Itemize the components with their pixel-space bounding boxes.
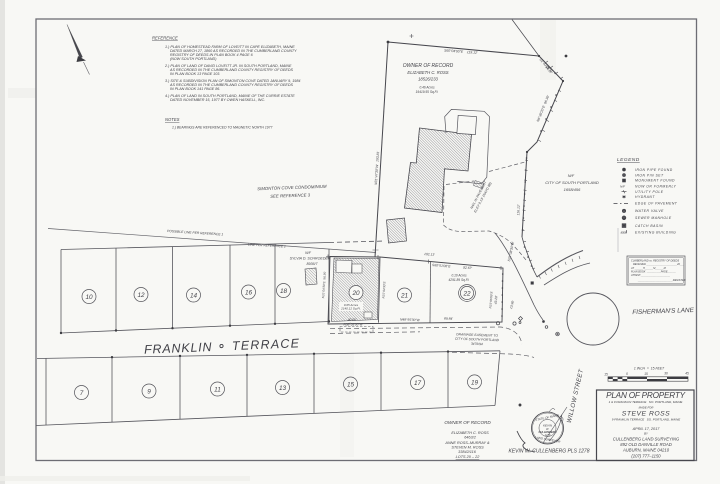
svg-text:MONUMENT FOUND: MONUMENT FOUND [635,179,675,183]
svg-text:RECEIVED _____________________: RECEIVED ______________________20___ [633,263,685,266]
svg-text:ATTEST:_____________________: ATTEST:_____________________ [630,274,671,277]
svg-text:APRIL 17, 2017: APRIL 17, 2017 [632,427,661,431]
svg-text:18: 18 [280,288,288,295]
svg-text:16: 16 [245,290,253,297]
svg-text:19: 19 [471,379,479,386]
svg-text:LEGEND: LEGEND [617,157,640,163]
svg-text:21: 21 [400,293,409,300]
svg-text:1 INCH = 15 FEET: 1 INCH = 15 FEET [634,367,665,371]
svg-text:MADE FOR: MADE FOR [639,406,654,410]
svg-text:22: 22 [462,291,471,298]
svg-text:18526/233: 18526/233 [418,77,438,82]
svg-text:0: 0 [626,372,628,376]
svg-text:EXISTING BUILDING: EXISTING BUILDING [635,231,676,235]
svg-text:17: 17 [414,380,422,387]
svg-text:1.) BEARINGS ARE REFERENCED TO: 1.) BEARINGS ARE REFERENCED TO MAGNETIC … [172,126,272,130]
svg-text:15: 15 [644,372,648,376]
svg-text:NOTES: NOTES [165,117,180,122]
svg-text:SEWER MANHOLE: SEWER MANHOLE [635,216,672,220]
svg-text:11: 11 [214,387,221,394]
svg-text:14: 14 [190,293,198,300]
svg-text:CATCH BASIN: CATCH BASIN [635,224,663,228]
svg-text:92.67': 92.67' [463,266,473,271]
svg-text:CITY OF SOUTH PORTLAND: CITY OF SOUTH PORTLAND [545,180,599,185]
svg-text:13: 13 [279,385,287,392]
svg-text:_________________________REGIS: _________________________REGISTER [637,279,686,282]
svg-text:HYDRANT: HYDRANT [635,195,655,199]
svg-text:AT ______H______M______M: AT ______H______M______M [630,267,667,270]
svg-text:ELIZABETH C. ROSS: ELIZABETH C. ROSS [451,431,489,435]
svg-text:19419.55 Sq.Ft.: 19419.55 Sq.Ft. [416,90,439,94]
svg-text:2140.12 Sq.Ft.: 2140.12 Sq.Ft. [340,307,361,311]
svg-text:33842/116: 33842/116 [458,450,477,454]
svg-text:DATED NOVEMBER 15, 1977 BY OWE: DATED NOVEMBER 15, 1977 BY OWEN HASKELL,… [170,98,265,102]
svg-text:ANNE ROSS–MURRAY &: ANNE ROSS–MURRAY & [444,441,490,445]
svg-text:30: 30 [664,372,668,376]
svg-text:AUBURN, MAINE 04210: AUBURN, MAINE 04210 [622,448,670,453]
svg-text:N/F: N/F [305,251,312,255]
svg-text:N58°55'30"W: N58°55'30"W [344,323,364,327]
svg-text:N/F: N/F [568,173,575,178]
svg-text:UTILITY POLE: UTILITY POLE [635,190,664,194]
svg-text:IRON PIN SET: IRON PIN SET [635,173,664,177]
svg-text:4291.89 Sq.Ft.: 4291.89 Sq.Ft. [449,278,470,282]
svg-text:12: 12 [137,292,145,299]
svg-text:TERRACE: TERRACE [232,336,301,353]
svg-text:10: 10 [85,294,93,301]
svg-text:(NOW SOUTH PORTLAND): (NOW SOUTH PORTLAND) [170,57,217,61]
svg-text:EDGE OF PAVEMENT: EDGE OF PAVEMENT [635,202,678,206]
svg-text:(207) 777–1150: (207) 777–1150 [631,454,661,459]
svg-text:15: 15 [604,372,608,376]
svg-text:40.00': 40.00' [348,318,357,322]
svg-text:6463/2: 6463/2 [464,436,477,440]
svg-text:ELIZABETH C. ROSS: ELIZABETH C. ROSS [407,70,448,75]
svg-text:9: 9 [147,389,151,396]
svg-text:KEVIN: KEVIN [543,424,553,428]
svg-text:3476/94: 3476/94 [471,342,483,346]
svg-text:8936/7: 8936/7 [307,262,319,266]
svg-text:OWNER OF RECORD: OWNER OF RECORD [444,420,491,425]
svg-text:KEVIN W. CULLENBERG PLS 1278: KEVIN W. CULLENBERG PLS 1278 [509,449,590,455]
svg-text:REFERENCE: REFERENCE [152,36,178,41]
svg-text:OWNER OF RECORD: OWNER OF RECORD [403,63,454,69]
svg-text:45: 45 [685,372,689,376]
svg-text:PLAN OF PROPERTY: PLAN OF PROPERTY [606,391,686,400]
svg-text:NOW OR FORMERLY: NOW OR FORMERLY [635,185,677,189]
svg-text:892 OLD DANVILLE ROAD: 892 OLD DANVILLE ROAD [620,442,671,447]
svg-text:LOTS 20 – 22: LOTS 20 – 22 [456,455,481,459]
svg-text:WATER VALVE: WATER VALVE [635,209,664,213]
svg-text:7: 7 [80,390,84,397]
svg-text:9 FRANKLIN TERRACE SO. PORTL: 9 FRANKLIN TERRACE SO. PORTLAND, MAINE [612,418,681,422]
svg-text:1658/456: 1658/456 [564,187,581,192]
svg-text:20: 20 [351,290,360,297]
svg-text:CULLENBERG LAND SURVEYING: CULLENBERG LAND SURVEYING [613,437,680,442]
svg-text:FRANKLIN: FRANKLIN [144,340,213,357]
svg-text:N48°55'30"W: N48°55'30"W [400,318,421,323]
svg-text:STEVE ROSS: STEVE ROSS [622,411,670,418]
svg-text:IN PLAN BOOK 13 PAGE 103.: IN PLAN BOOK 13 PAGE 103. [170,72,220,76]
svg-text:0.46 Acres: 0.46 Acres [419,86,435,90]
svg-text:1 & 9 FRANKLIN TERRACE SO. P: 1 & 9 FRANKLIN TERRACE SO. PORTLAND, MAI… [609,400,684,404]
svg-text:IRON PIPE FOUND: IRON PIPE FOUND [635,168,673,172]
svg-text:15: 15 [347,382,355,389]
svg-text:43.28': 43.28' [494,295,499,305]
svg-text:IN PLAN BOOK 141 PAGE 86.: IN PLAN BOOK 141 PAGE 86. [170,87,220,91]
svg-text:SYLVIA D. SCHROEDER: SYLVIA D. SCHROEDER [290,257,331,261]
svg-text:89.84': 89.84' [444,317,453,321]
svg-text:116.12': 116.12' [516,204,521,215]
svg-text:102.13': 102.13' [424,252,435,257]
